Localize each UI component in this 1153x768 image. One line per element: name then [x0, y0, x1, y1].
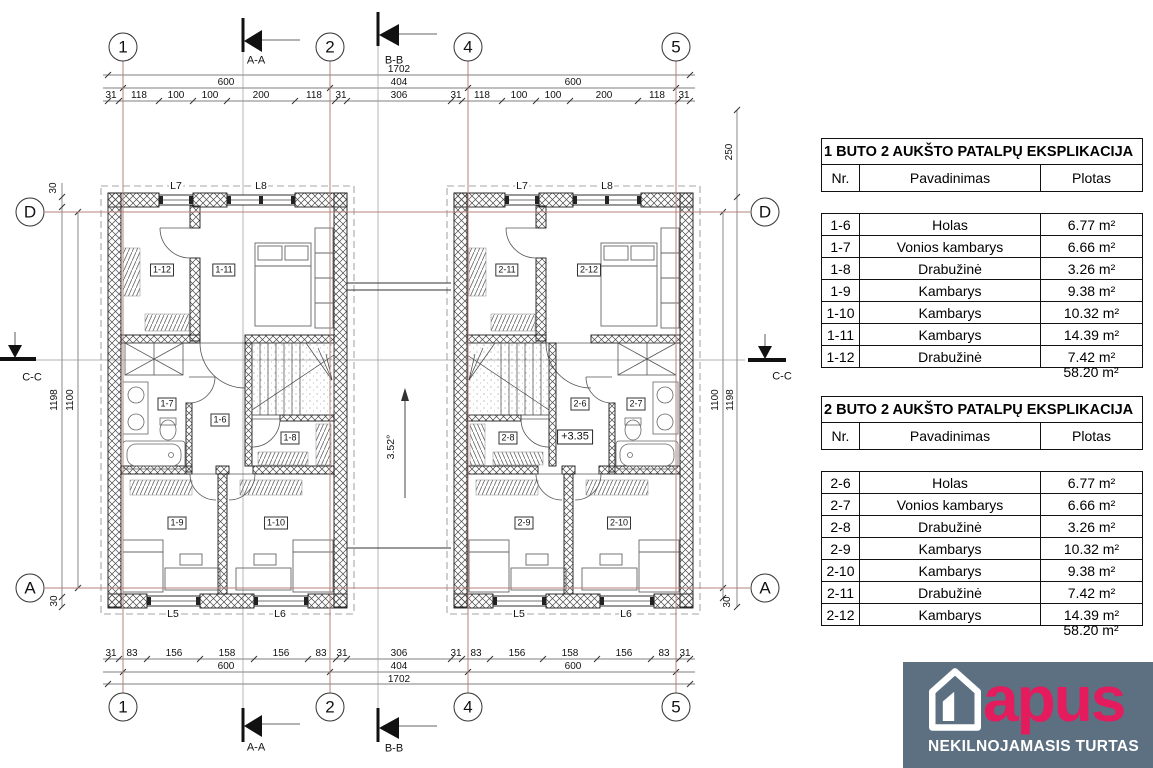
table-row: 2-7Vonios kambarys6.66 m² — [822, 494, 1143, 516]
dim-bottom-seg: 158 — [562, 649, 579, 659]
dim-right-1100: 1100 — [711, 389, 721, 411]
dim-bottom-seg: 31 — [336, 649, 347, 659]
grid-bubble-a-left: A — [16, 574, 45, 603]
dim-top-seg: 118 — [649, 91, 665, 101]
dim-left-30-bottom: 30 — [50, 595, 60, 606]
elevation-label: +3.35 — [557, 430, 593, 445]
cell-area: 9.38 m² — [1041, 280, 1143, 302]
cell-name: Kambarys — [860, 560, 1041, 582]
dim-top-seg: 31 — [450, 91, 461, 101]
window-label-l7-unit1: L7 — [169, 181, 183, 192]
dim-bottom-seg: 31 — [679, 649, 690, 659]
logo-brand-name: apus — [983, 662, 1124, 737]
grid-bubble-5-top: 5 — [662, 33, 691, 62]
cell-area: 7.42 m² — [1041, 582, 1143, 604]
table-row: 1-11Kambarys14.39 m² — [822, 324, 1143, 346]
table-row: 1-7Vonios kambarys6.66 m² — [822, 236, 1143, 258]
cell-name: Drabužinė — [860, 516, 1041, 538]
cell-name: Kambarys — [860, 280, 1041, 302]
logo-tagline: NEKILNOJAMASIS TURTAS — [928, 738, 1139, 756]
room-label-2-6: 2-6 — [570, 398, 589, 411]
table-header-row: Nr. Pavadinimas Plotas — [822, 423, 1143, 450]
dim-top-center: 306 — [391, 91, 408, 101]
col-header-pavadinimas: Pavadinimas — [860, 423, 1041, 450]
room-label-2-7: 2-7 — [626, 398, 645, 411]
dim-bottom-seg: 83 — [315, 649, 326, 659]
table-row: 2-10Kambarys9.38 m² — [822, 560, 1143, 582]
dim-top-seg: 100 — [511, 91, 528, 101]
dim-bottom-mid: 404 — [391, 662, 408, 672]
table-1-total: 58.20 m² — [1040, 364, 1142, 380]
cell-nr: 1-7 — [822, 236, 860, 258]
dimension-lines — [62, 75, 737, 684]
dim-bottom-mid: 600 — [565, 662, 582, 672]
dim-top-mid: 404 — [391, 78, 408, 88]
room-label-2-11: 2-11 — [495, 264, 518, 277]
grid-bubble-4-bottom: 4 — [454, 693, 483, 722]
room-label-2-10: 2-10 — [607, 517, 631, 530]
cell-area: 10.32 m² — [1041, 538, 1143, 560]
dim-top-seg: 100 — [545, 91, 562, 101]
section-label-cc-right: C-C — [772, 372, 792, 383]
dim-top-seg: 31 — [335, 91, 346, 101]
dim-left-1198: 1198 — [50, 389, 60, 411]
cell-nr: 1-8 — [822, 258, 860, 280]
room-label-1-8: 1-8 — [280, 432, 299, 445]
cell-nr: 1-10 — [822, 302, 860, 324]
cell-name: Holas — [860, 214, 1041, 236]
cell-name: Drabužinė — [860, 346, 1041, 368]
cell-area: 10.32 m² — [1041, 302, 1143, 324]
dim-bottom-seg: 156 — [273, 649, 290, 659]
table-row: 1-10Kambarys10.32 m² — [822, 302, 1143, 324]
table-row: 2-8Drabužinė3.26 m² — [822, 516, 1143, 538]
dim-top-total: 1702 — [388, 65, 410, 75]
col-header-plotas: Plotas — [1041, 165, 1143, 192]
cell-nr: 2-8 — [822, 516, 860, 538]
section-label-aa-top: A-A — [247, 56, 265, 67]
grid-bubble-5-bottom: 5 — [662, 693, 691, 722]
room-label-1-7: 1-7 — [157, 398, 176, 411]
col-header-plotas: Plotas — [1041, 423, 1143, 450]
dim-bottom-seg: 158 — [219, 649, 236, 659]
dim-bottom-seg: 83 — [126, 649, 137, 659]
dim-bottom-seg: 156 — [616, 649, 633, 659]
table-apartment-2-body: 2-6Holas6.77 m² 2-7Vonios kambarys6.66 m… — [821, 471, 1143, 626]
dimension-ticks — [59, 72, 740, 687]
cell-name: Drabužinė — [860, 258, 1041, 280]
cell-area: 6.77 m² — [1041, 214, 1143, 236]
room-label-1-9: 1-9 — [167, 517, 186, 530]
room-label-1-11: 1-11 — [212, 264, 235, 277]
section-cut-lines — [35, 46, 745, 708]
table-title: 1 BUTO 2 AUKŠTO PATALPŲ EKSPLIKACIJA — [822, 139, 1143, 165]
dim-top-seg: 200 — [253, 91, 270, 101]
window-label-l5-unit2: L5 — [512, 609, 526, 620]
window-label-l6-unit2: L6 — [619, 609, 633, 620]
cell-area: 6.77 m² — [1041, 472, 1143, 494]
house-icon — [929, 667, 981, 731]
window-label-l8-unit1: L8 — [254, 181, 268, 192]
dim-bottom-center: 306 — [391, 649, 408, 659]
grid-bubble-2-bottom: 2 — [316, 693, 345, 722]
table-apartment-2-head: 2 BUTO 2 AUKŠTO PATALPŲ EKSPLIKACIJA Nr.… — [821, 396, 1143, 450]
cell-nr: 1-11 — [822, 324, 860, 346]
grid-bubble-2-top: 2 — [316, 33, 345, 62]
dim-bottom-seg: 83 — [470, 649, 481, 659]
dim-left-1100: 1100 — [66, 389, 76, 411]
table-2-total: 58.20 m² — [1040, 622, 1142, 638]
table-row: 2-6Holas6.77 m² — [822, 472, 1143, 494]
window-label-l6-unit1: L6 — [273, 609, 287, 620]
cell-nr: 1-6 — [822, 214, 860, 236]
cell-nr: 2-10 — [822, 560, 860, 582]
cell-name: Kambarys — [860, 538, 1041, 560]
cell-name: Drabužinė — [860, 582, 1041, 604]
cell-name: Vonios kambarys — [860, 236, 1041, 258]
dim-bottom-seg: 83 — [658, 649, 669, 659]
cell-area: 14.39 m² — [1041, 324, 1143, 346]
grid-bubble-d-right: D — [751, 198, 780, 227]
cell-area: 3.26 m² — [1041, 516, 1143, 538]
slope-arrow — [401, 388, 409, 498]
cell-area: 6.66 m² — [1041, 494, 1143, 516]
cell-nr: 1-12 — [822, 346, 860, 368]
cell-area: 9.38 m² — [1041, 560, 1143, 582]
dim-bottom-seg: 31 — [105, 649, 116, 659]
dim-bottom-seg: 156 — [509, 649, 526, 659]
table-row: 1-6Holas6.77 m² — [822, 214, 1143, 236]
cell-name: Holas — [860, 472, 1041, 494]
cell-nr: 2-6 — [822, 472, 860, 494]
dim-top-mid: 600 — [218, 78, 235, 88]
table-apartment-1-head: 1 BUTO 2 AUKŠTO PATALPŲ EKSPLIKACIJA Nr.… — [821, 138, 1143, 192]
cell-name: Kambarys — [860, 324, 1041, 346]
dim-bottom-mid: 600 — [218, 662, 235, 672]
section-label-cc-left: C-C — [22, 373, 42, 384]
dim-right-1198: 1198 — [726, 389, 736, 411]
room-label-2-12: 2-12 — [577, 264, 601, 277]
grid-bubble-d-left: D — [16, 198, 45, 227]
window-label-l5-unit1: L5 — [166, 609, 180, 620]
cell-area: 6.66 m² — [1041, 236, 1143, 258]
grid-bubble-1-bottom: 1 — [109, 693, 138, 722]
table-row: 2-9Kambarys10.32 m² — [822, 538, 1143, 560]
table-row: 1-9Kambarys9.38 m² — [822, 280, 1143, 302]
cell-nr: 2-12 — [822, 604, 860, 626]
dim-top-seg: 118 — [474, 91, 490, 101]
table-title: 2 BUTO 2 AUKŠTO PATALPŲ EKSPLIKACIJA — [822, 397, 1143, 423]
dim-bottom-seg: 31 — [450, 649, 461, 659]
col-header-nr: Nr. — [822, 165, 860, 192]
window-label-l8-unit2: L8 — [600, 181, 614, 192]
cell-area: 3.26 m² — [1041, 258, 1143, 280]
dim-top-seg: 118 — [306, 91, 322, 101]
room-label-2-9: 2-9 — [514, 517, 533, 530]
table-apartment-1-body: 1-6Holas6.77 m² 1-7Vonios kambarys6.66 m… — [821, 213, 1143, 368]
dim-top-seg: 100 — [202, 91, 219, 101]
col-header-pavadinimas: Pavadinimas — [860, 165, 1041, 192]
section-label-aa-bottom: A-A — [247, 743, 265, 754]
section-marker-tails — [15, 34, 765, 726]
cell-name: Vonios kambarys — [860, 494, 1041, 516]
cell-name: Kambarys — [860, 604, 1041, 626]
table-header-row: Nr. Pavadinimas Plotas — [822, 165, 1143, 192]
cell-name: Kambarys — [860, 302, 1041, 324]
room-label-1-6: 1-6 — [210, 414, 229, 427]
table-row: 1-8Drabužinė3.26 m² — [822, 258, 1143, 280]
cell-nr: 2-9 — [822, 538, 860, 560]
grid-bubble-4-top: 4 — [454, 33, 483, 62]
dim-top-seg: 100 — [168, 91, 185, 101]
company-logo: apus NEKILNOJAMASIS TURTAS — [903, 662, 1153, 768]
cell-nr: 1-9 — [822, 280, 860, 302]
cell-nr: 2-11 — [822, 582, 860, 604]
dim-top-seg: 31 — [105, 91, 116, 101]
room-label-1-10: 1-10 — [264, 517, 288, 530]
dim-right-250: 250 — [725, 144, 735, 161]
room-label-1-12: 1-12 — [150, 264, 174, 277]
unit-connectors — [347, 283, 451, 548]
table-row: 2-11Drabužinė7.42 m² — [822, 582, 1143, 604]
section-label-bb-bottom: B-B — [385, 744, 403, 755]
dim-top-seg: 31 — [678, 91, 689, 101]
slope-label: 3.52° — [386, 435, 397, 460]
dim-left-30-top: 30 — [49, 182, 59, 193]
dim-bottom-total: 1702 — [388, 675, 410, 685]
dim-top-mid: 600 — [565, 78, 582, 88]
room-label-2-8: 2-8 — [498, 432, 517, 445]
col-header-nr: Nr. — [822, 423, 860, 450]
dim-top-seg: 118 — [131, 91, 147, 101]
window-label-l7-unit2: L7 — [515, 181, 529, 192]
dim-bottom-seg: 156 — [166, 649, 183, 659]
dim-right-30-bottom: 30 — [723, 596, 733, 607]
floor-plan-sheet: 1 2 4 5 1 2 4 5 D A D A A-A B-B A-A B-B … — [0, 0, 1153, 768]
grid-bubble-1-top: 1 — [109, 33, 138, 62]
cell-nr: 2-7 — [822, 494, 860, 516]
grid-bubble-a-right: A — [751, 574, 780, 603]
dim-top-seg: 200 — [596, 91, 613, 101]
